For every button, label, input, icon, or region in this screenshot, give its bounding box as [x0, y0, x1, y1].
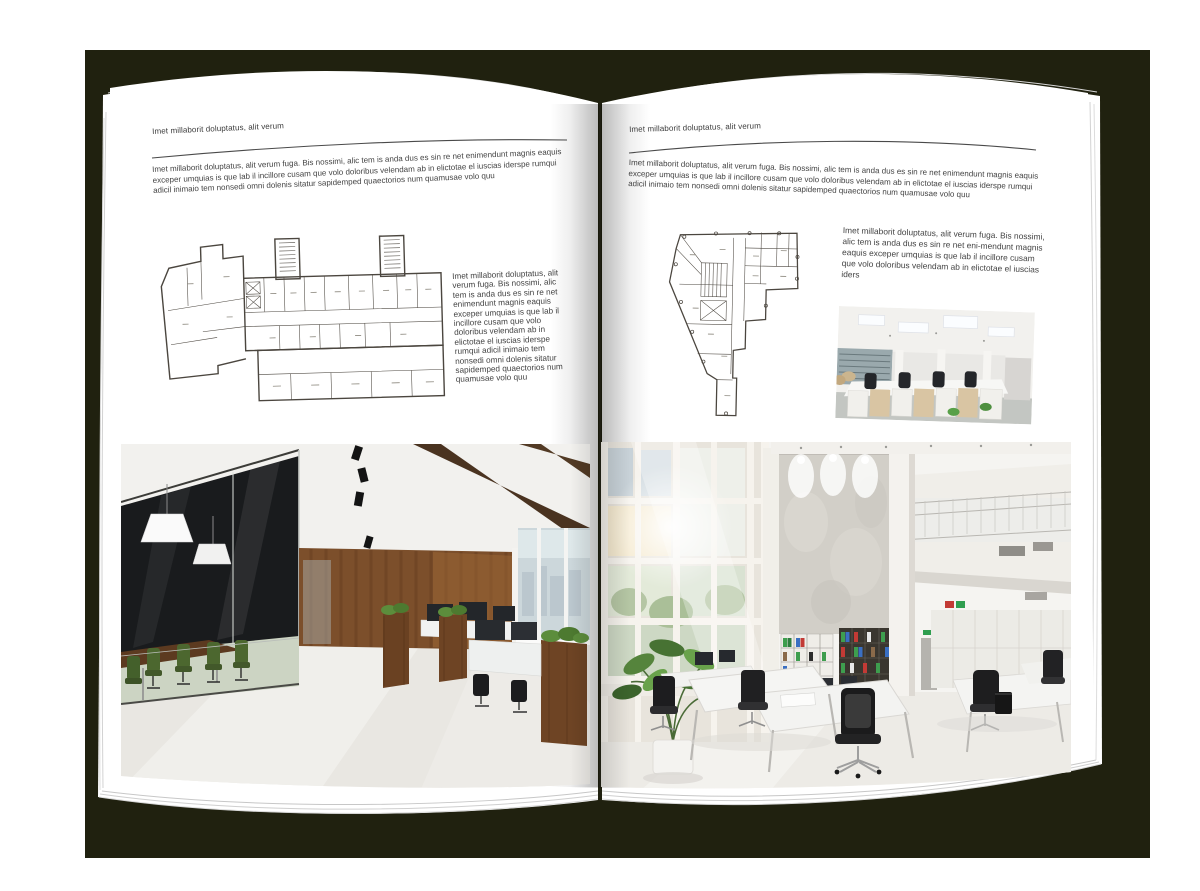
mezzanine	[897, 464, 1071, 594]
waste-bin	[995, 692, 1012, 714]
photo-left-office	[121, 444, 590, 789]
left-page-side-column: Imet millaborit doluptatus, alit verum f…	[452, 268, 575, 385]
magazine-spread-mockup: Imet millaborit doluptatus, alit verum I…	[0, 0, 1200, 891]
concrete-wall	[779, 452, 891, 634]
floor-plan-left	[156, 232, 453, 412]
photo-right-atrium	[601, 442, 1071, 790]
column	[763, 448, 779, 696]
right-page-side-column: Imet millaborit doluptatus, alit verum f…	[841, 225, 1047, 287]
first-aid-sign	[945, 601, 954, 608]
ceiling-strip	[771, 442, 1071, 454]
floor-plan-right	[647, 224, 809, 423]
photo-small-office	[835, 306, 1035, 424]
